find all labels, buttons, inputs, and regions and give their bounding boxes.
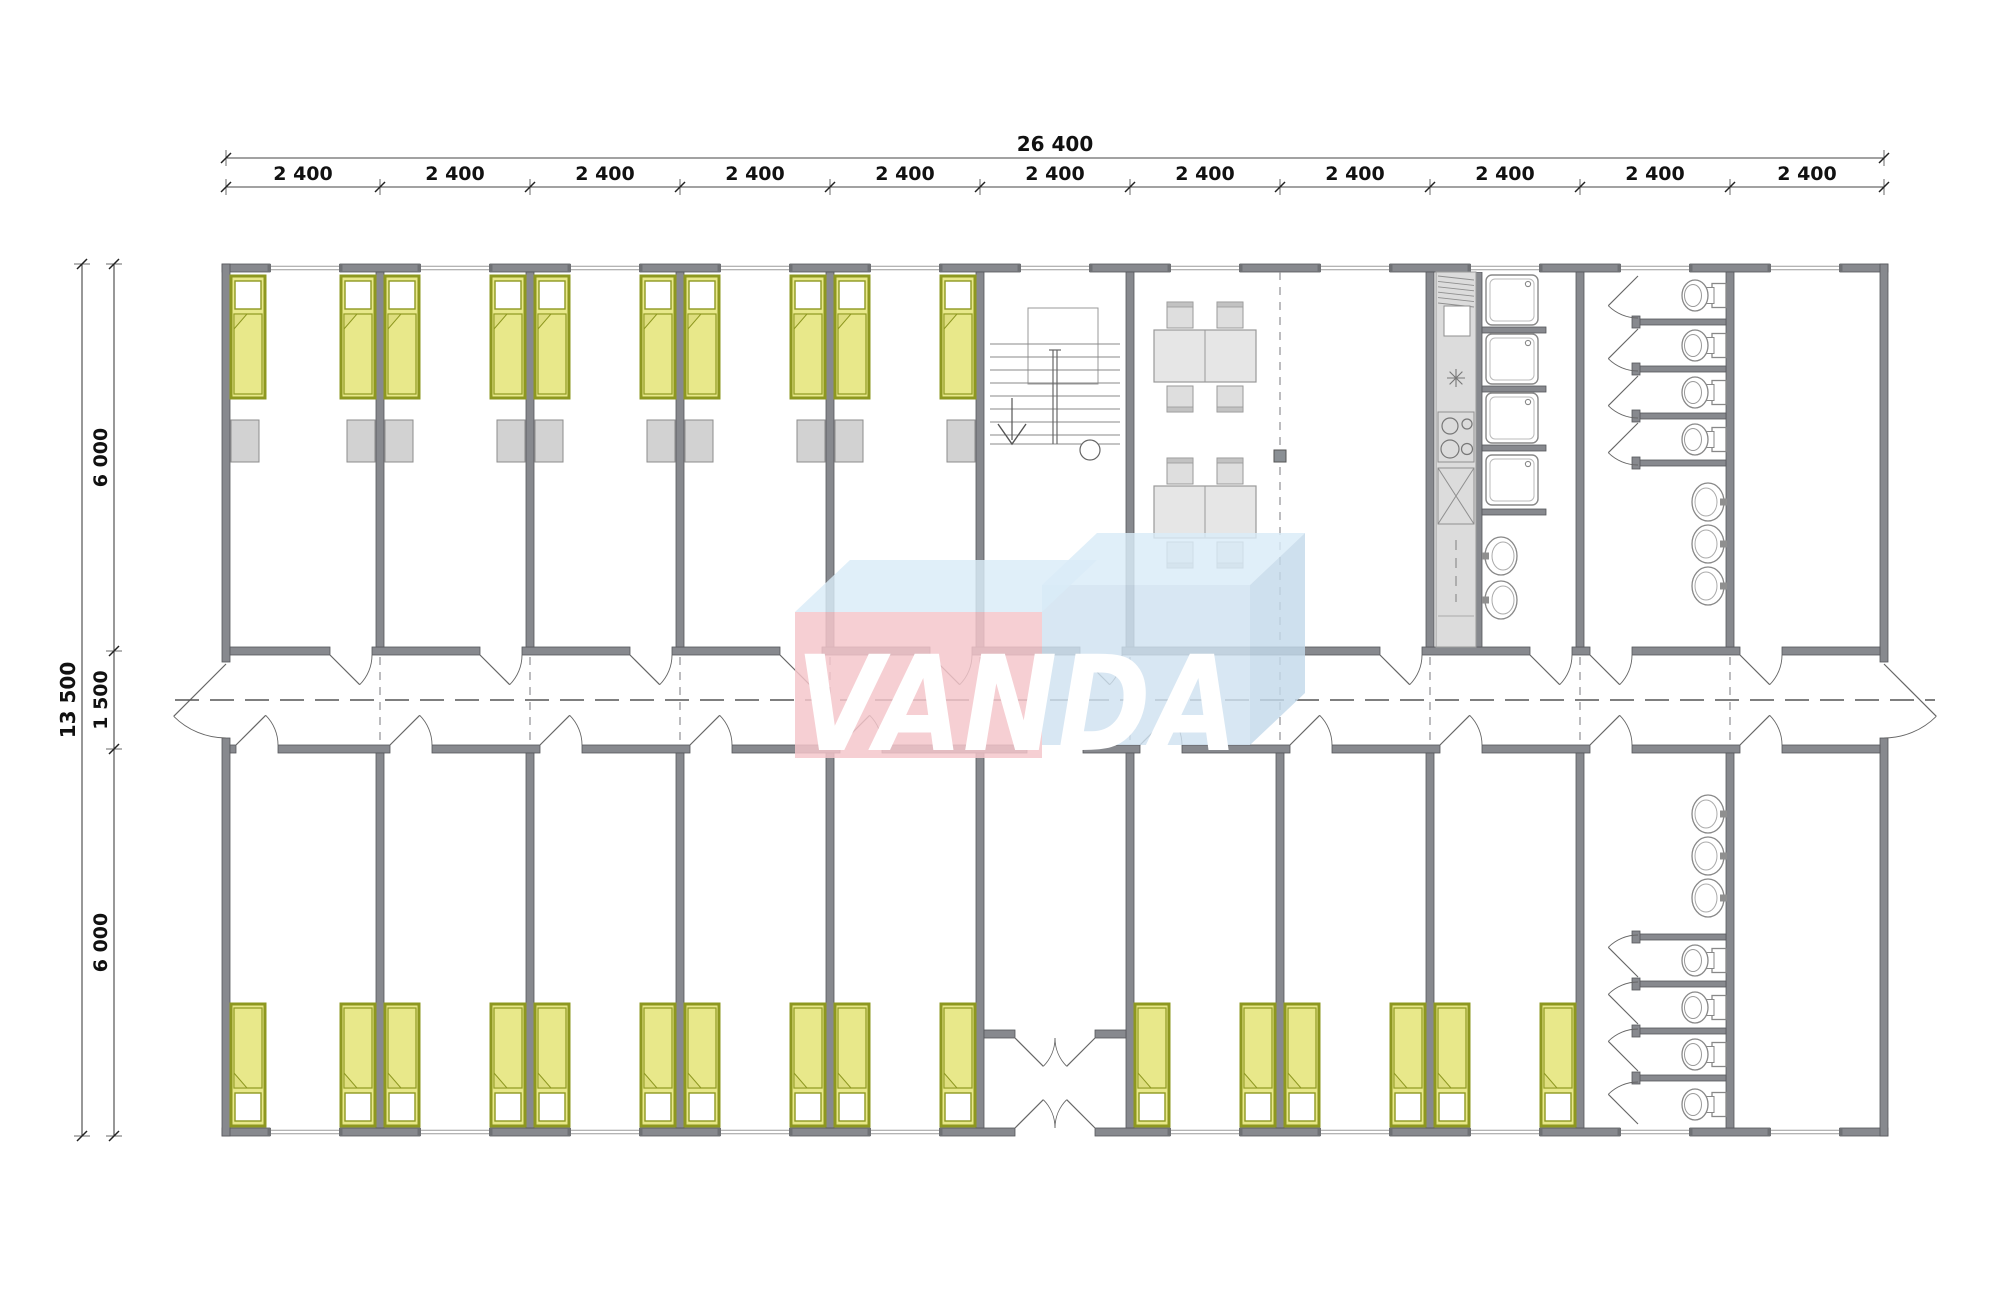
dimension-label: 2 400 xyxy=(1625,163,1685,185)
window-symbol xyxy=(1018,264,1093,272)
bed-symbol xyxy=(1391,1004,1425,1126)
dimension-label: 1 500 xyxy=(90,670,112,730)
door-symbol xyxy=(690,715,732,745)
toilet-symbol xyxy=(1682,945,1726,976)
bed-symbol xyxy=(1435,1004,1469,1126)
toilet-symbol xyxy=(1682,330,1726,361)
toilet-symbol xyxy=(1682,1039,1726,1070)
bed-symbol xyxy=(791,1004,825,1126)
locker-symbol xyxy=(231,420,259,462)
door-symbol xyxy=(1380,655,1422,685)
chair-symbol xyxy=(1217,458,1243,484)
bed-symbol xyxy=(491,276,525,398)
window-symbol xyxy=(568,264,643,272)
bed-symbol xyxy=(385,1004,419,1126)
door-symbol xyxy=(1740,655,1782,685)
window-symbol xyxy=(1768,1128,1843,1136)
locker-symbol xyxy=(647,420,675,462)
washbasin-symbol xyxy=(1692,483,1727,521)
bed-symbol xyxy=(1541,1004,1575,1126)
toilet-symbol xyxy=(1682,280,1726,311)
chair-symbol xyxy=(1217,302,1243,328)
dimension-label: 2 400 xyxy=(575,163,635,185)
dimension-label: 2 400 xyxy=(875,163,935,185)
dimension-label: 2 400 xyxy=(1475,163,1535,185)
shower-tray-symbol xyxy=(1486,455,1538,505)
window-symbol xyxy=(1468,1128,1543,1136)
bed-symbol xyxy=(835,276,869,398)
watermark-text: VANDA xyxy=(796,628,1238,782)
floor-plan-drawing: VANDA 26 4002 4002 4002 4002 4002 4002 4… xyxy=(0,0,2000,1312)
window-symbol xyxy=(718,1128,793,1136)
bed-symbol xyxy=(685,1004,719,1126)
bed-symbol xyxy=(1241,1004,1275,1126)
locker-symbol xyxy=(835,420,863,462)
bed-symbol xyxy=(641,276,675,398)
bed-symbol xyxy=(835,1004,869,1126)
window-symbol xyxy=(1618,264,1693,272)
chair-symbol xyxy=(1217,386,1243,412)
locker-symbol xyxy=(947,420,975,462)
door-symbol xyxy=(630,655,672,685)
window-symbol xyxy=(268,264,343,272)
locker-symbol xyxy=(385,420,413,462)
window-symbol xyxy=(568,1128,643,1136)
door-symbol xyxy=(330,655,372,685)
door-symbol xyxy=(236,715,278,745)
shower-tray-symbol xyxy=(1486,393,1538,443)
bed-symbol xyxy=(231,276,265,398)
shower-tray-symbol xyxy=(1486,334,1538,384)
shower-tray-symbol xyxy=(1486,275,1538,325)
dining-table-symbol xyxy=(1154,330,1256,382)
entrance-door-symbol xyxy=(1015,1100,1095,1128)
door-symbol xyxy=(1740,715,1782,745)
window-symbol xyxy=(1618,1128,1693,1136)
washbasin-symbol xyxy=(1692,795,1727,833)
exit-door-symbol xyxy=(174,664,226,738)
washbasin-symbol xyxy=(1482,581,1517,619)
washbasin-symbol xyxy=(1482,537,1517,575)
washbasin-symbol xyxy=(1692,567,1727,605)
toilet-symbol xyxy=(1682,992,1726,1023)
dimension-label: 6 000 xyxy=(90,428,112,488)
bed-symbol xyxy=(941,1004,975,1126)
door-symbol xyxy=(1440,715,1482,745)
dimension-label: 6 000 xyxy=(90,913,112,973)
dimension-label: 2 400 xyxy=(1175,163,1235,185)
window-symbol xyxy=(1168,1128,1243,1136)
dimension-label: 2 400 xyxy=(1777,163,1837,185)
door-symbol xyxy=(1590,715,1632,745)
dimension-label: 2 400 xyxy=(425,163,485,185)
door-symbol xyxy=(1530,655,1572,685)
door-symbol xyxy=(1590,655,1632,685)
chair-symbol xyxy=(1167,302,1193,328)
bed-symbol xyxy=(1135,1004,1169,1126)
dimension-label: 26 400 xyxy=(1017,132,1094,156)
window-symbol xyxy=(718,264,793,272)
staircase-symbol xyxy=(990,308,1120,460)
washbasin-symbol xyxy=(1692,879,1727,917)
washbasin-symbol xyxy=(1692,525,1727,563)
dimension-label: 13 500 xyxy=(56,662,80,739)
floor-plan-page: VANDA 26 4002 4002 4002 4002 4002 4002 4… xyxy=(0,0,2000,1312)
locker-symbol xyxy=(347,420,375,462)
dimension-label: 2 400 xyxy=(725,163,785,185)
dimension-label: 2 400 xyxy=(273,163,333,185)
window-symbol xyxy=(1318,264,1393,272)
window-symbol xyxy=(418,264,493,272)
chair-symbol xyxy=(1167,458,1193,484)
door-symbol xyxy=(390,715,432,745)
window-symbol xyxy=(1318,1128,1393,1136)
window-symbol xyxy=(868,1128,943,1136)
toilet-symbol xyxy=(1682,377,1726,408)
dining-table-symbol xyxy=(1154,486,1256,538)
stall-door-symbol xyxy=(1608,1082,1638,1124)
bed-symbol xyxy=(791,276,825,398)
locker-symbol xyxy=(685,420,713,462)
washbasin-symbol xyxy=(1692,837,1727,875)
dimension-label: 2 400 xyxy=(1325,163,1385,185)
kitchen-counter-symbol xyxy=(1436,272,1476,647)
bed-symbol xyxy=(641,1004,675,1126)
double-door-symbol xyxy=(1015,1038,1095,1066)
door-symbol xyxy=(540,715,582,745)
bed-symbol xyxy=(231,1004,265,1126)
bed-symbol xyxy=(341,276,375,398)
window-symbol xyxy=(1168,264,1243,272)
window-symbol xyxy=(868,264,943,272)
bed-symbol xyxy=(535,1004,569,1126)
chair-symbol xyxy=(1167,386,1193,412)
toilet-symbol xyxy=(1682,424,1726,455)
stall-door-symbol xyxy=(1608,276,1638,318)
bed-symbol xyxy=(535,276,569,398)
bed-symbol xyxy=(341,1004,375,1126)
bed-symbol xyxy=(685,276,719,398)
window-symbol xyxy=(268,1128,343,1136)
watermark: VANDA xyxy=(795,533,1305,782)
locker-symbol xyxy=(797,420,825,462)
window-symbol xyxy=(1768,264,1843,272)
locker-symbol xyxy=(535,420,563,462)
dimension-label: 2 400 xyxy=(1025,163,1085,185)
bed-symbol xyxy=(385,276,419,398)
toilet-symbol xyxy=(1682,1089,1726,1120)
locker-symbol xyxy=(497,420,525,462)
window-symbol xyxy=(1468,264,1543,272)
door-symbol xyxy=(480,655,522,685)
column-marker xyxy=(1274,450,1286,462)
window-symbol xyxy=(418,1128,493,1136)
bed-symbol xyxy=(941,276,975,398)
bed-symbol xyxy=(1285,1004,1319,1126)
bed-symbol xyxy=(491,1004,525,1126)
exit-door-symbol xyxy=(1884,664,1936,738)
door-symbol xyxy=(1290,715,1332,745)
